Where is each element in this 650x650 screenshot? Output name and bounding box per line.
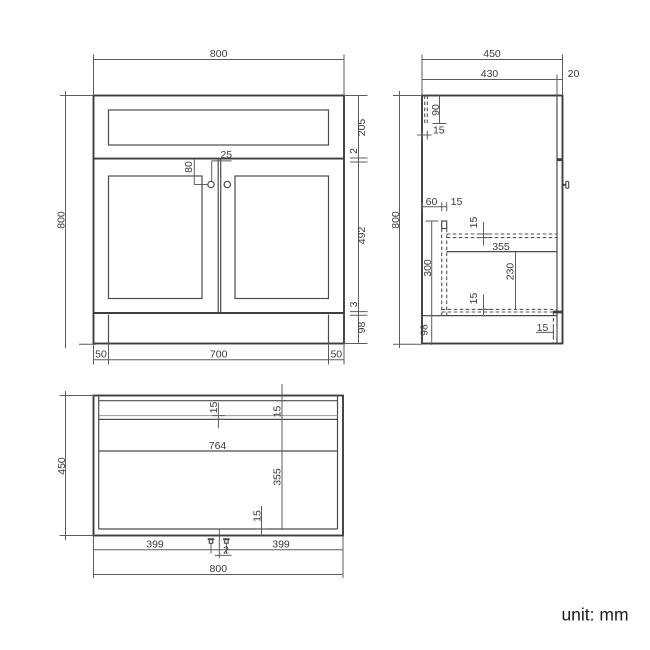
plan-view: 15 15 355 764 15 399 399 2 800 450 [56, 384, 343, 578]
dim-side-plinth-recess: 15 [537, 322, 549, 334]
dim-side-shelf-depth: 355 [492, 241, 510, 253]
technical-drawing: 800 800 205 2 492 3 98 50 700 50 [0, 0, 650, 650]
dim-side-overall-depth: 450 [483, 48, 501, 60]
dim-plan-back-rail-thickness: 15 [208, 402, 220, 414]
drawer-runner-section [442, 221, 447, 229]
dim-plan-knob-from-left: 399 [146, 539, 164, 551]
plan-right-knob-icon [223, 539, 230, 543]
dim-side-plinth-height: 98 [419, 324, 431, 336]
drawer-door-gap-mark [557, 158, 563, 161]
dim-plan-back-panel-thickness: 15 [272, 406, 284, 418]
dim-side-shelf-to-bottom: 230 [505, 263, 517, 281]
dim-front-knob-drop: 80 [183, 161, 195, 173]
vanity-technical-drawing-page: 800 800 205 2 492 3 98 50 700 50 [0, 0, 650, 650]
dim-side-door-thickness: 20 [568, 68, 580, 80]
dim-front-plinth-inset-left: 50 [95, 348, 107, 360]
dim-side-carcass-depth: 430 [481, 68, 499, 80]
dim-side-bottom-panel-thickness: 15 [468, 293, 480, 305]
left-door-knob-icon [208, 181, 214, 187]
dim-plan-overall-width: 800 [210, 563, 228, 575]
right-door-knob-icon [224, 181, 230, 187]
side-knob-icon [566, 181, 569, 188]
front-view: 800 800 205 2 492 3 98 50 700 50 [56, 48, 369, 365]
left-door-panel [109, 176, 203, 299]
dim-side-overall-height: 800 [390, 211, 402, 229]
dim-plan-front-rail-thickness: 15 [251, 510, 263, 522]
dim-side-back-detail-height: 90 [430, 104, 442, 116]
dim-front-knob-offset: 25 [220, 149, 232, 161]
side-view: 450 430 20 800 90 15 60 15 30 [390, 48, 580, 348]
dim-front-drawer-door-gap: 2 [348, 148, 360, 154]
dim-front-plinth-inset-right: 50 [330, 348, 342, 360]
dim-side-runner-setback: 60 [426, 196, 438, 208]
door-bottom-mark [553, 311, 563, 314]
dim-side-runner-width: 15 [451, 196, 463, 208]
dim-front-plinth-height: 98 [356, 322, 368, 334]
right-door-panel [235, 176, 329, 299]
side-view-dimensions: 450 430 20 800 90 15 60 15 30 [390, 48, 580, 348]
dim-front-drawer-height: 205 [356, 119, 368, 137]
unit-note: unit: mm [561, 605, 628, 625]
dim-front-plinth-width: 700 [210, 348, 228, 360]
dim-plan-door-gap: 2 [223, 545, 229, 557]
dim-side-interior-height: 300 [422, 259, 434, 277]
front-view-outline [94, 96, 345, 344]
drawer-front-panel [109, 110, 329, 145]
dim-front-overall-height: 800 [56, 211, 68, 229]
plan-left-knob-icon [208, 539, 215, 543]
dim-plan-interior-width: 764 [209, 440, 227, 452]
dim-front-overall-width: 800 [210, 48, 228, 60]
dim-plan-overall-depth: 450 [56, 457, 68, 475]
dim-front-door-plinth-gap: 3 [348, 301, 360, 307]
dim-side-back-panel-thickness: 15 [433, 125, 445, 137]
dim-plan-interior-depth: 355 [272, 468, 284, 486]
dim-plan-knob-from-right: 399 [272, 539, 290, 551]
dim-side-shelf-thickness: 15 [468, 217, 480, 229]
dim-front-door-height: 492 [356, 227, 368, 245]
